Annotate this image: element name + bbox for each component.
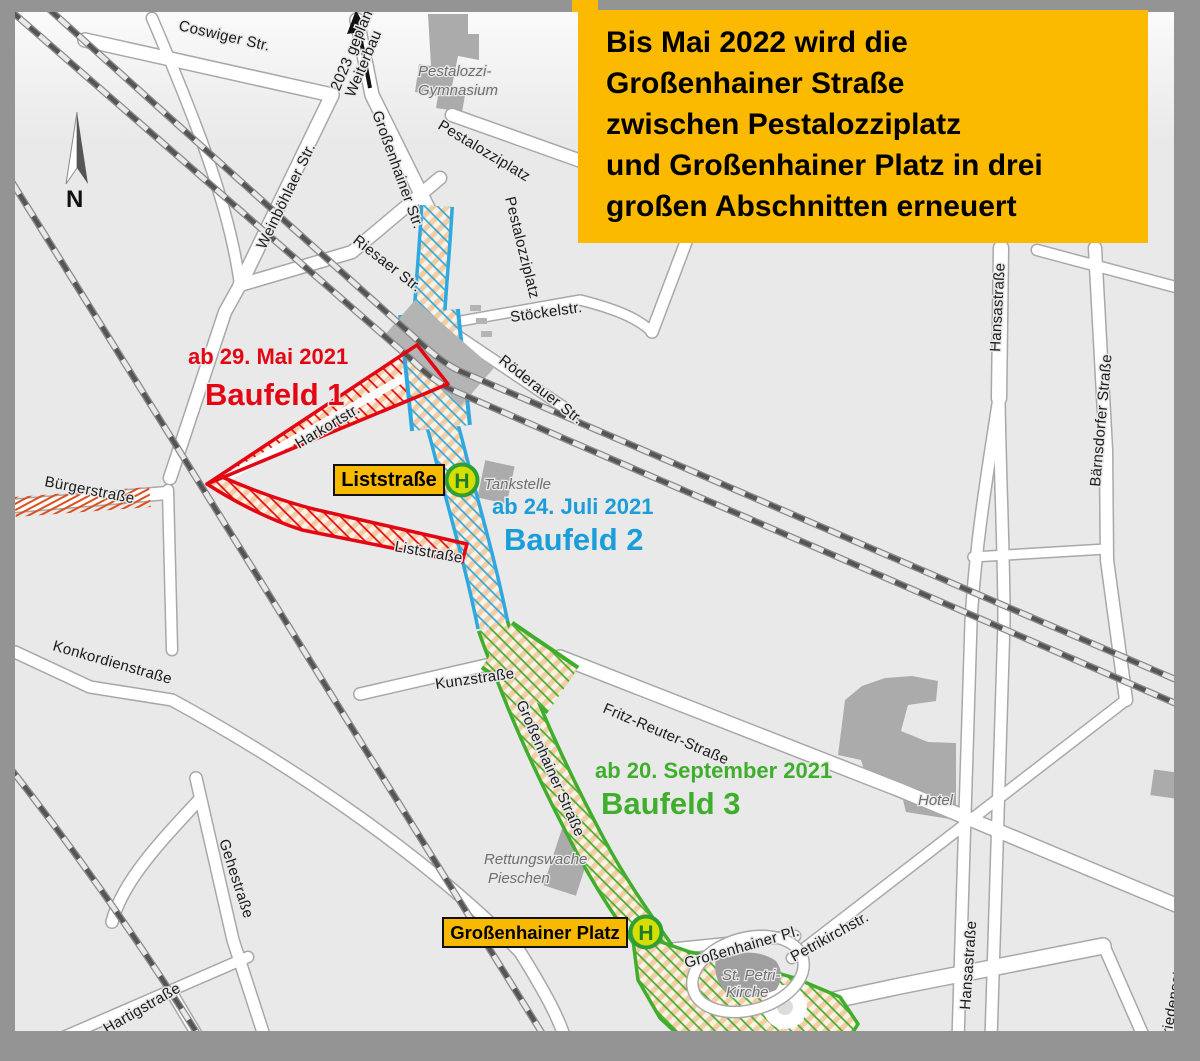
label-rettungswache-2: Pieschen	[488, 870, 550, 887]
bus-stop-icon-liststrasse: H	[445, 463, 480, 498]
baufeld3-title: Baufeld 3	[601, 786, 741, 821]
headline-line: und Großenhainer Platz in drei	[606, 145, 1138, 186]
bus-stop-icon-grossenhainer-platz: H	[629, 915, 664, 950]
baufeld1-title: Baufeld 1	[205, 377, 345, 412]
headline-line: großen Abschnitten erneuert	[606, 186, 1138, 227]
label-gymnasium-2: Gymnasium	[418, 82, 498, 99]
stop-plate-liststrasse: Liststraße	[333, 464, 445, 496]
label-tankstelle: Tankstelle	[484, 476, 551, 493]
headline-line: Großenhainer Straße	[606, 63, 1138, 104]
h-glyph: H	[454, 470, 469, 493]
h-glyph: H	[638, 922, 653, 945]
label-gymnasium-1: Pestalozzi-	[418, 63, 491, 80]
baufeld3-date: ab 20. September 2021	[595, 758, 832, 783]
label-hotel: Hotel	[918, 792, 954, 809]
label-rettungswache-1: Rettungswache	[484, 851, 587, 868]
baufeld2-title: Baufeld 2	[504, 522, 644, 557]
stop-plate-grossenhainer-platz: Großenhainer Platz	[442, 917, 628, 948]
headline-line: Bis Mai 2022 wird die	[606, 22, 1138, 63]
label-st-petri-2: Kirche	[726, 984, 769, 1001]
baufeld1-date: ab 29. Mai 2021	[188, 344, 348, 369]
label-st-petri-1: St. Petri-	[722, 967, 780, 984]
headline-line: zwischen Pestalozziplatz	[606, 104, 1138, 145]
compass-label: N	[66, 186, 83, 213]
construction-map: N H H Coswiger Str. Weiterbau 2023 gepla…	[0, 0, 1200, 1061]
headline-box: Bis Mai 2022 wird die Großenhainer Straß…	[578, 10, 1148, 243]
baufeld2-date: ab 24. Juli 2021	[492, 494, 653, 519]
